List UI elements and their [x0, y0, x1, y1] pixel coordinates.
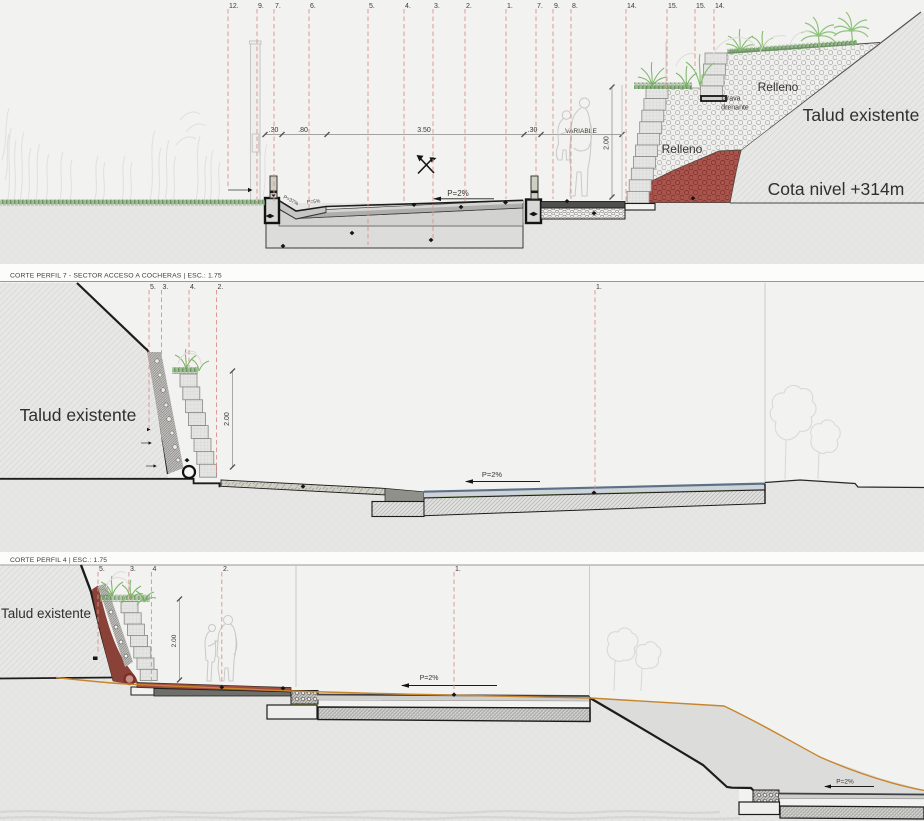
svg-text:2.: 2.: [466, 3, 472, 10]
svg-text:5.: 5.: [150, 284, 156, 291]
svg-text:14.: 14.: [627, 3, 637, 10]
svg-text:5.: 5.: [369, 3, 375, 10]
svg-text:7.: 7.: [537, 3, 543, 10]
svg-text:Cota nivel +314m: Cota nivel +314m: [768, 179, 905, 199]
svg-text:1.: 1.: [596, 284, 602, 291]
svg-text:7.: 7.: [275, 3, 281, 10]
svg-text:P=2%: P=2%: [420, 675, 439, 682]
svg-text:CORTE PERFIL 7 - SECTOR ACCESO: CORTE PERFIL 7 - SECTOR ACCESO A COCHERA…: [10, 273, 222, 280]
svg-text:2.: 2.: [223, 566, 229, 573]
svg-text:6.: 6.: [310, 3, 316, 10]
svg-text:3.: 3.: [434, 3, 440, 10]
svg-text:P=2%: P=2%: [482, 470, 503, 479]
svg-text:2.00: 2.00: [224, 412, 231, 426]
svg-text:12.: 12.: [229, 3, 239, 10]
svg-text:P=2%: P=2%: [447, 189, 469, 198]
svg-text:Talud existente: Talud existente: [1, 606, 91, 621]
svg-text:15.: 15.: [696, 3, 706, 10]
svg-text:5.: 5.: [99, 566, 105, 573]
svg-text:P=2%: P=2%: [836, 779, 854, 786]
svg-text:2.00: 2.00: [604, 136, 611, 150]
svg-text:1.: 1.: [455, 566, 461, 573]
svg-text:2.: 2.: [218, 284, 224, 291]
svg-text:Relleno: Relleno: [758, 80, 799, 94]
svg-text:1.: 1.: [507, 3, 513, 10]
svg-text:3.: 3.: [163, 284, 169, 291]
svg-text:VARIABLE: VARIABLE: [565, 128, 597, 135]
svg-text:4: 4: [153, 566, 157, 573]
svg-text:Relleno: Relleno: [662, 142, 703, 156]
svg-text:CORTE PERFIL 4 | ESC.: 1.75: CORTE PERFIL 4 | ESC.: 1.75: [10, 557, 107, 564]
svg-text:9.: 9.: [554, 3, 560, 10]
svg-text:Grava: Grava: [721, 96, 740, 103]
svg-text:3.50: 3.50: [417, 127, 431, 134]
svg-text:15.: 15.: [668, 3, 678, 10]
svg-text:2.00: 2.00: [171, 634, 178, 647]
svg-text:14.: 14.: [715, 3, 725, 10]
svg-text:4.: 4.: [405, 3, 411, 10]
svg-text:9.: 9.: [258, 3, 264, 10]
svg-text:8.: 8.: [572, 3, 578, 10]
svg-text:Talud existente: Talud existente: [20, 405, 137, 425]
svg-text:4.: 4.: [190, 284, 196, 291]
svg-text:Talud existente: Talud existente: [803, 105, 920, 125]
svg-text:.80: .80: [298, 127, 308, 134]
svg-text:3.: 3.: [130, 566, 136, 573]
svg-text:drenante: drenante: [721, 105, 749, 112]
